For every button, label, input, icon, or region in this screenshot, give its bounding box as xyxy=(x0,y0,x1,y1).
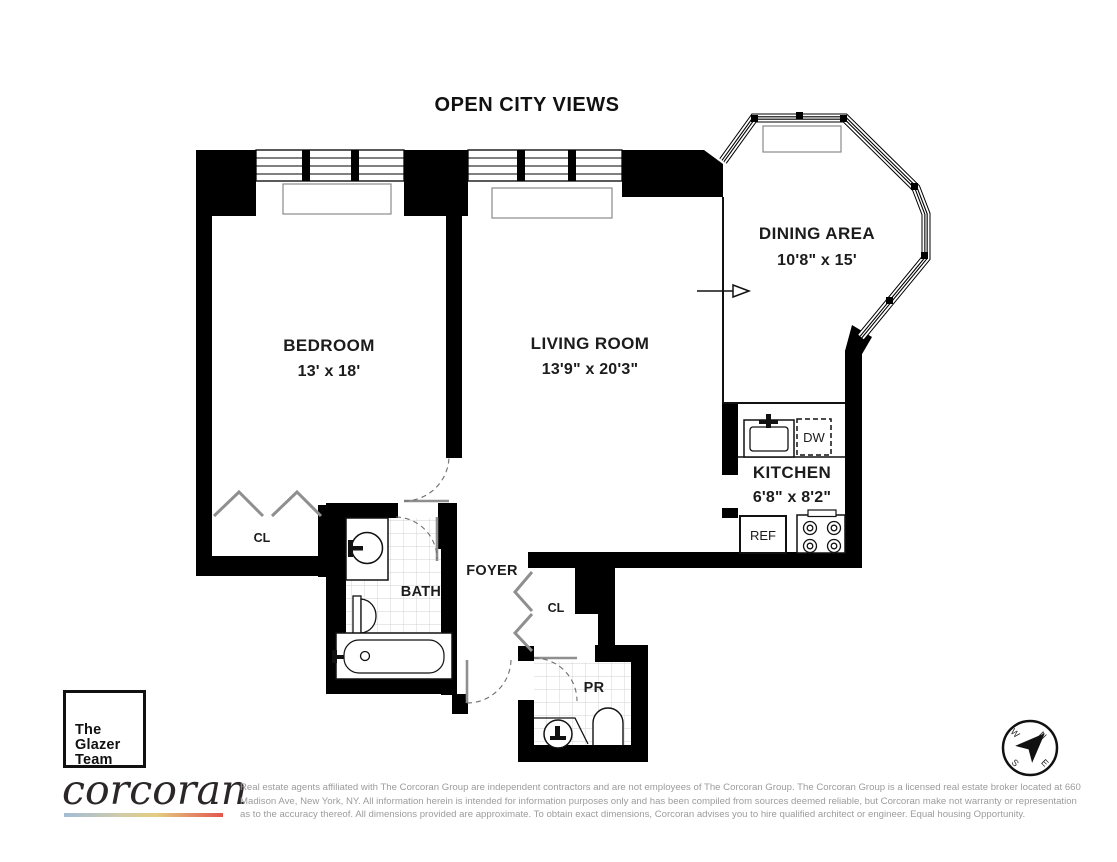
pr-toilet xyxy=(593,708,623,745)
kitchen-sink xyxy=(744,414,794,457)
disclaimer-line-1: Real estate agents affiliated with The C… xyxy=(240,781,1070,795)
refrigerator-label: REF xyxy=(750,528,776,543)
corcoran-gradient-bar xyxy=(64,813,223,817)
dining-area-label: DINING AREA xyxy=(759,224,875,243)
compass-icon: N E S W xyxy=(994,714,1063,783)
glazer-line-1: The xyxy=(75,723,121,738)
bathtub xyxy=(332,633,452,679)
living-room-label: LIVING ROOM xyxy=(531,334,650,353)
disclaimer-line-3: as to the accuracy thereof. All dimensio… xyxy=(240,808,1070,822)
dishwasher: DW xyxy=(797,419,831,455)
bath-sink xyxy=(346,518,388,580)
floor-plan-page: OPEN CITY VIEWS xyxy=(0,0,1117,862)
bedroom-window xyxy=(256,150,404,181)
dishwasher-label: DW xyxy=(803,430,825,445)
legal-disclaimer: Real estate agents affiliated with The C… xyxy=(240,781,1070,822)
foyer-closet-label: CL xyxy=(548,601,565,615)
kitchen-dims: 6'8" x 8'2" xyxy=(753,489,831,506)
corcoran-logo: corcoran xyxy=(62,766,247,814)
kitchen-label: KITCHEN xyxy=(753,463,831,482)
living-room-dims: 13'9" x 20'3" xyxy=(542,361,639,378)
refrigerator: REF xyxy=(740,516,786,553)
powder-room-label: PR xyxy=(584,680,605,696)
bedroom-dims: 13' x 18' xyxy=(298,363,361,380)
bath-label: BATH xyxy=(401,584,441,600)
glazer-line-2: Glazer xyxy=(75,738,121,753)
bedroom-label: BEDROOM xyxy=(283,336,375,355)
foyer-label: FOYER xyxy=(466,563,518,579)
dining-area-dims: 10'8" x 15' xyxy=(777,252,857,269)
bedroom-closet-label: CL xyxy=(254,531,271,545)
floor-plan-drawing: DW REF BEDROOM 13' x 18' LIVING ROOM 13'… xyxy=(0,0,1117,862)
stove xyxy=(797,510,845,553)
living-room-window xyxy=(468,150,622,181)
glazer-team-logo: The Glazer Team xyxy=(63,690,146,768)
disclaimer-line-2: Madison Ave, New York, NY. All informati… xyxy=(240,795,1070,809)
